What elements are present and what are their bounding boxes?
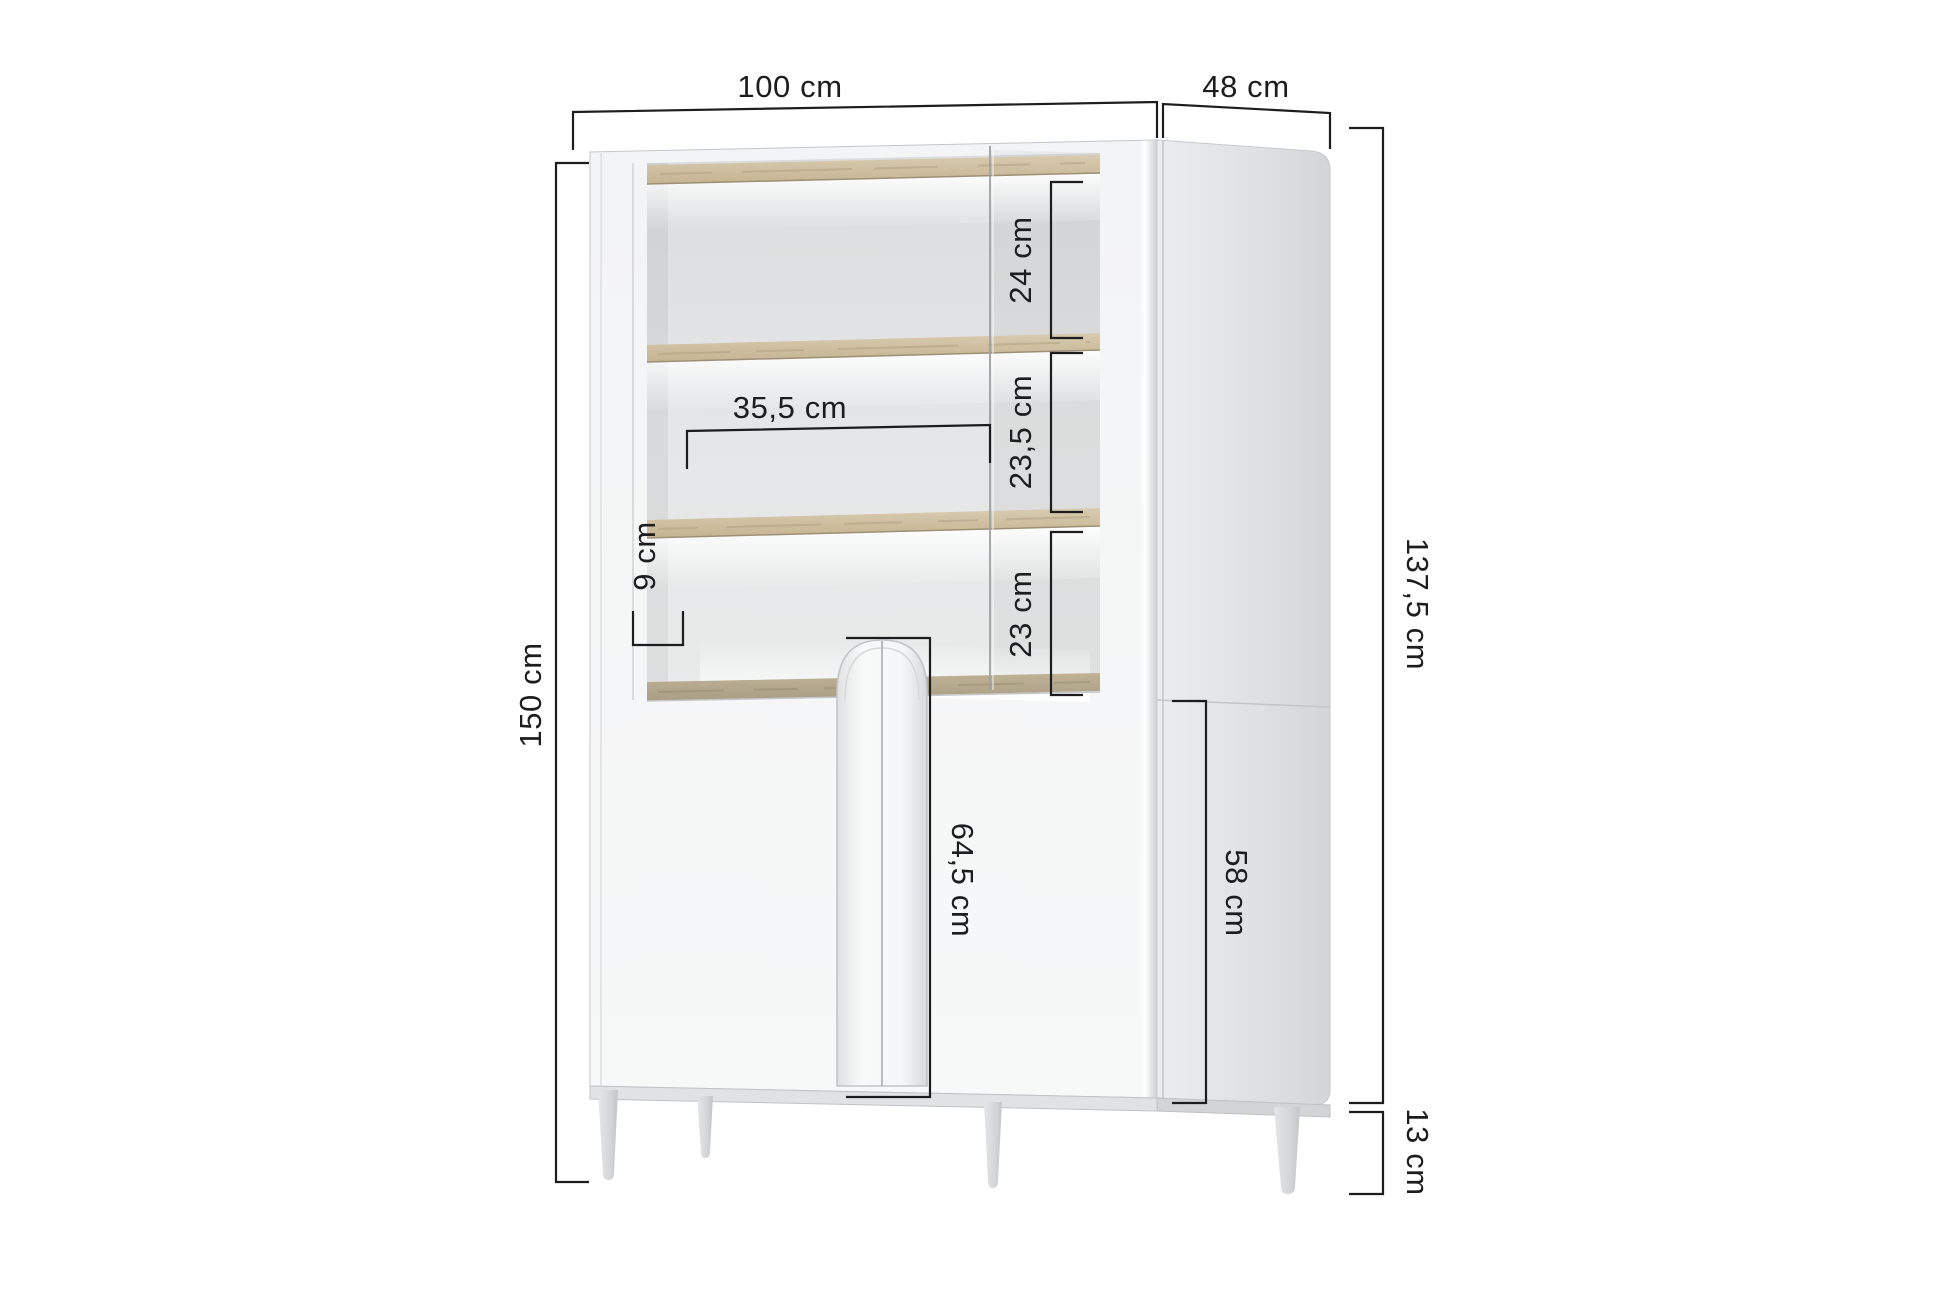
dim-label-bottom-shelf-space: 23 cm <box>1003 570 1038 657</box>
dim-label-body-height: 137,5 cm <box>1400 538 1435 670</box>
dim-body-height-line <box>1349 128 1383 1103</box>
dim-label-door-front-height: 64,5 cm <box>945 823 980 937</box>
dim-overall-depth: 48 cm <box>1163 69 1330 149</box>
cabinet-dimension-diagram: 100 cm 48 cm 150 cm 137,5 cm 13 cm 9 cm <box>0 0 1946 1297</box>
cabinet-side-panel <box>1157 140 1330 1105</box>
cabinet-leg-rear-left <box>697 1096 713 1158</box>
dim-overall-height: 150 cm <box>513 163 589 1182</box>
dim-overall-height-line <box>556 163 589 1182</box>
dim-leg-height: 13 cm <box>1349 1108 1435 1195</box>
dim-label-middle-shelf-space: 23,5 cm <box>1003 375 1038 489</box>
cabinet-illustration <box>590 140 1330 1194</box>
dim-overall-width: 100 cm <box>573 69 1157 150</box>
dim-label-overall-width: 100 cm <box>737 69 842 104</box>
dim-label-leg-height: 13 cm <box>1400 1108 1435 1195</box>
dim-leg-height-line <box>1349 1112 1383 1194</box>
cabinet-leg-front-left <box>598 1090 618 1180</box>
dim-label-lower-side-height: 58 cm <box>1219 849 1254 936</box>
cabinet-front-right-corner <box>1138 140 1157 1098</box>
dim-label-top-shelf-space: 24 cm <box>1003 216 1038 303</box>
dim-label-inner-shelf-width: 35,5 cm <box>733 390 847 425</box>
dim-label-overall-height: 150 cm <box>513 642 548 747</box>
dim-body-height: 137,5 cm <box>1349 128 1435 1103</box>
product-dimension-image: 100 cm 48 cm 150 cm 137,5 cm 13 cm 9 cm <box>0 0 1946 1297</box>
cabinet-leg-front-right <box>984 1102 1002 1188</box>
arch-door-handle <box>837 640 927 1086</box>
display-opening-left-wall-shade <box>647 163 668 701</box>
dim-label-overall-depth: 48 cm <box>1202 69 1289 104</box>
dim-label-side-frame-width: 9 cm <box>627 521 662 591</box>
cabinet-leg-rear-right <box>1274 1107 1300 1194</box>
